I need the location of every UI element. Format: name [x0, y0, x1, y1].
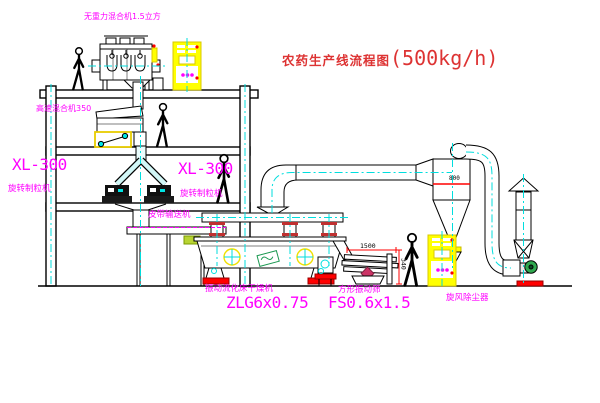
label-sieve-model: FS0.6x1.5 [328, 295, 410, 311]
outlet-pipe-drawing [466, 152, 511, 268]
label-granulator-right: 旋转制粒机 [180, 190, 223, 199]
title-text: 农药生产线流程图 [282, 53, 390, 68]
flow-diagram-canvas: 农药生产线流程图(500kg/h) 无重力混合机1.5立方 高速混合机350 X… [0, 0, 600, 403]
label-gravity-mixer: 无重力混合机1.5立方 [84, 13, 161, 21]
label-dryer-model: ZLG6x0.75 [226, 295, 308, 311]
worker-figure-floor2 [157, 104, 167, 147]
worker-figure-roof [73, 48, 83, 90]
label-xl300-left: XL-300 [12, 157, 67, 173]
gravity-mixer-drawing [92, 36, 163, 90]
label-granulator-left: 旋转制粒机 [8, 185, 51, 194]
granulator-right-drawing [144, 185, 174, 203]
label-cyclone: 旋风除尘器 [446, 294, 489, 303]
granulator-left-drawing [102, 185, 132, 203]
dimension-sieve-length: 1500 [360, 243, 376, 250]
label-xl300-right: XL-300 [178, 161, 233, 177]
diagram-title: 农药生产线流程图(500kg/h) [282, 46, 498, 70]
label-high-speed-mixer: 高速混合机350 [36, 105, 91, 113]
dimension-cyclone-band: 800 [449, 176, 460, 182]
label-belt-conveyor: 皮带输送机 [148, 211, 191, 220]
dimension-sieve-height: 340 [400, 258, 407, 270]
title-capacity: (500kg/h) [390, 46, 498, 70]
vibrating-sieve-drawing [342, 254, 399, 284]
